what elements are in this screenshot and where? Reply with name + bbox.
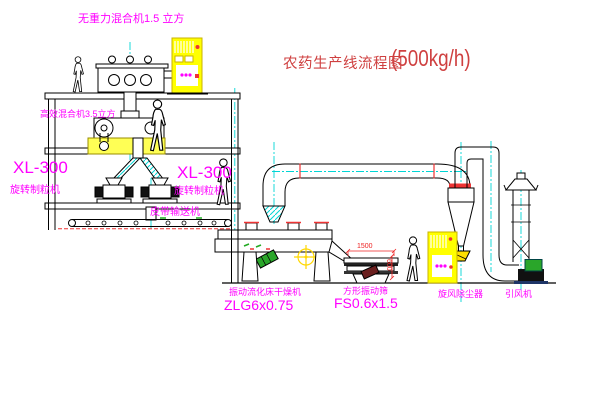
control-cabinet-upper (167, 38, 208, 94)
exhaust-hood (263, 206, 285, 222)
label-gravity-free-mixer: 无重力混合机1.5 立方 (78, 14, 184, 25)
label-granulator-right-name: 旋转制粒机 (174, 187, 224, 197)
granulator-left (95, 178, 133, 203)
fan-motor-icon (525, 260, 542, 272)
fluid-bed-dryer (215, 206, 354, 281)
label-dryer-model: ZLG6x0.75 (224, 298, 293, 312)
rain-cap-icon (506, 179, 536, 190)
person-ground (407, 237, 420, 281)
label-high-efficiency-mixer: 高效混合机3.5立方 (40, 110, 116, 119)
indicator-light-icon (196, 45, 200, 49)
label-granulator-right-model: XL-300 (177, 164, 232, 181)
label-fan: 引风机 (505, 290, 532, 299)
exhaust-duct (263, 164, 470, 207)
page-title: 农药生产线流程图 (283, 52, 403, 73)
dimension-screen-length: 1500 (357, 243, 373, 250)
label-granulator-left-name: 旋转制粒机 (10, 186, 60, 196)
label-dryer-name: 振动流化床干燥机 (229, 288, 301, 297)
diagram-canvas: 农药生产线流程图 (500kg/h) 无重力混合机1.5 立方 高效混合机3.5… (0, 0, 600, 403)
label-belt-conveyor: 皮带输送机 (150, 208, 200, 218)
vibration-motor-icon (256, 250, 278, 268)
gravity-free-mixer (96, 56, 180, 114)
inlet-flange (449, 184, 471, 189)
label-granulator-left-model: XL-300 (13, 159, 68, 176)
label-screen-model: FS0.6x1.5 (334, 296, 398, 310)
person-top-floor (73, 57, 83, 92)
dimension-screen-height: 600 (385, 259, 392, 271)
page-title-capacity: (500kg/h) (391, 45, 471, 72)
control-cabinet-lower (428, 232, 457, 283)
induced-draft-fan (514, 260, 548, 285)
y-chute (112, 158, 164, 180)
label-cyclone: 旋风除尘器 (438, 290, 483, 299)
indicator-light-icon (449, 237, 453, 241)
